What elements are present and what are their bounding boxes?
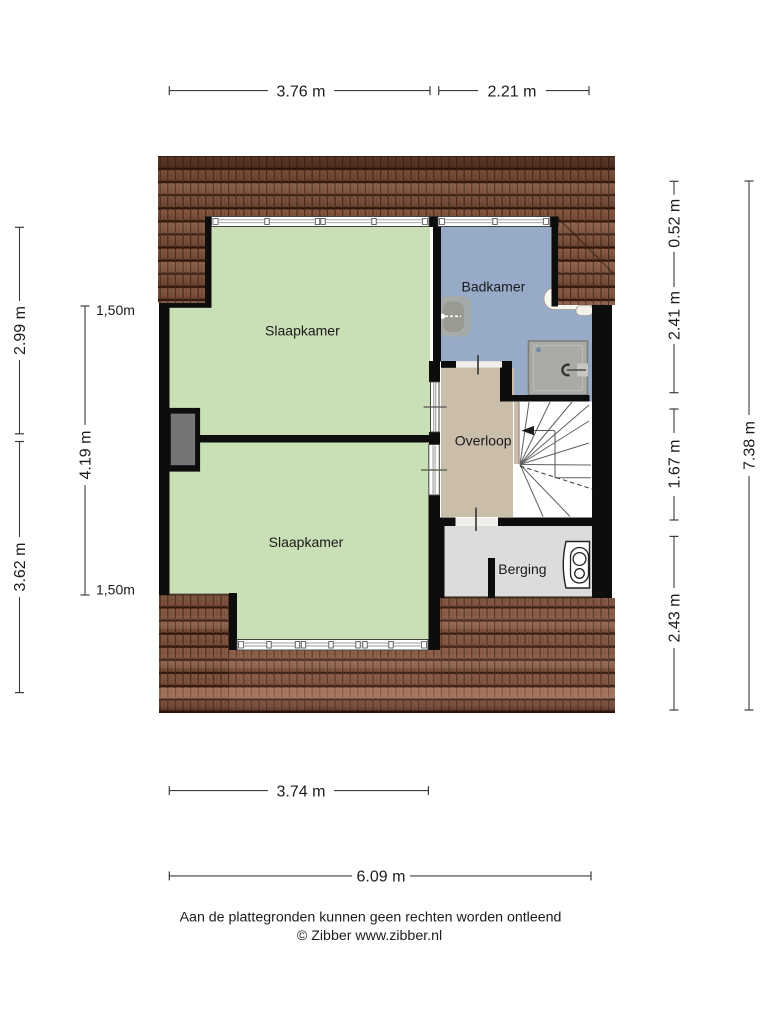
svg-text:2.41 m: 2.41 m: [667, 291, 684, 340]
svg-text:2.43 m: 2.43 m: [667, 594, 684, 643]
svg-text:1,50m: 1,50m: [96, 582, 135, 598]
svg-text:3.74 m: 3.74 m: [277, 783, 326, 800]
svg-text:7.38 m: 7.38 m: [742, 421, 759, 470]
svg-text:3.62 m: 3.62 m: [12, 543, 29, 592]
svg-text:2.21 m: 2.21 m: [488, 83, 537, 100]
svg-text:Overloop: Overloop: [455, 432, 512, 448]
svg-text:Slaapkamer: Slaapkamer: [269, 534, 344, 550]
svg-text:2.99 m: 2.99 m: [12, 306, 29, 355]
svg-text:Berging: Berging: [498, 561, 546, 577]
svg-text:Aan de plattegronden kunnen ge: Aan de plattegronden kunnen geen rechten…: [180, 910, 562, 926]
svg-text:1,50m: 1,50m: [96, 302, 135, 318]
svg-text:1.67 m: 1.67 m: [667, 440, 684, 489]
svg-text:Badkamer: Badkamer: [461, 279, 525, 295]
svg-text:© Zibber www.zibber.nl: © Zibber www.zibber.nl: [297, 928, 442, 944]
svg-text:3.76 m: 3.76 m: [277, 83, 326, 100]
svg-text:0.52 m: 0.52 m: [667, 199, 684, 248]
svg-text:6.09 m: 6.09 m: [357, 869, 406, 886]
svg-text:4.19 m: 4.19 m: [78, 431, 95, 480]
svg-text:Slaapkamer: Slaapkamer: [265, 322, 340, 338]
